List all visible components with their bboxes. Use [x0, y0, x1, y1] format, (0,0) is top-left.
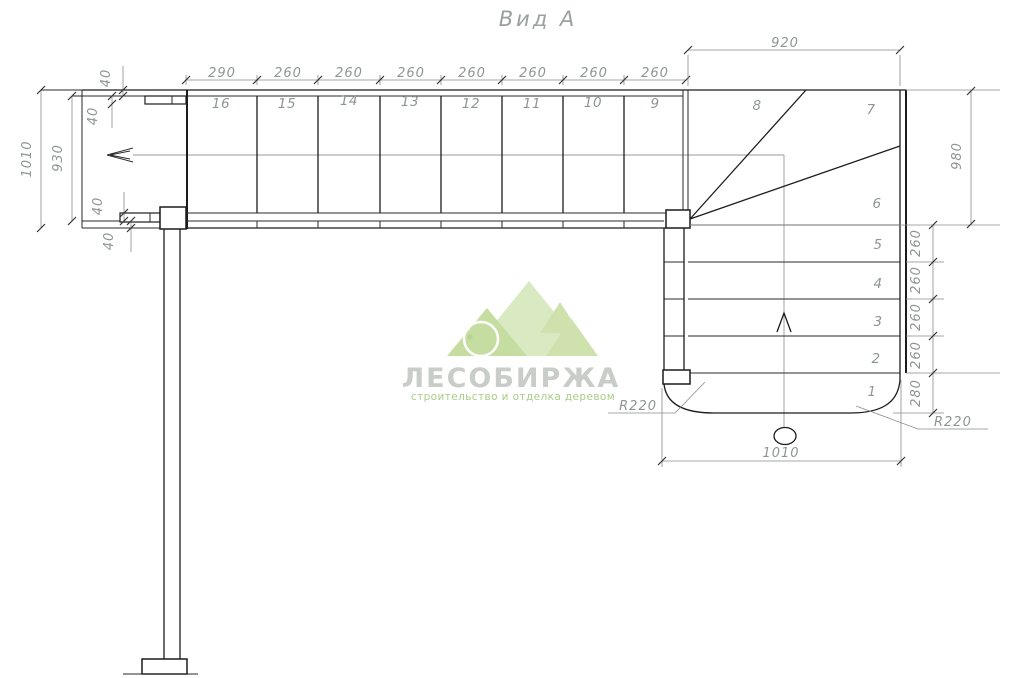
dim-top-260-2: 260	[335, 66, 363, 81]
newel-post-corner	[666, 210, 690, 228]
step-number-2: 2	[871, 351, 880, 367]
step-number-10: 10	[584, 95, 602, 111]
step-number-4: 4	[873, 276, 882, 292]
dim-top-260-1: 260	[274, 66, 302, 81]
dim-top-260-4: 260	[458, 66, 486, 81]
dim-right-280: 280	[909, 379, 924, 407]
dim-right-260-3: 260	[909, 303, 924, 331]
step-number-8: 8	[752, 98, 761, 114]
dim-offset-2: 40	[86, 107, 101, 126]
stringer-divider-ticks	[257, 221, 624, 228]
landing-geometry	[82, 90, 198, 674]
step-number-7: 7	[866, 102, 875, 118]
dim-line-920	[688, 50, 900, 86]
step-number-13: 13	[401, 94, 419, 110]
step-number-1: 1	[867, 384, 876, 400]
dim-landing-clear: 930	[51, 144, 66, 172]
dim-right-260-1: 260	[909, 229, 924, 257]
newel-post-landing	[160, 207, 186, 229]
walk-start-arrow-icon	[107, 148, 133, 162]
dim-right-260-2: 260	[909, 266, 924, 294]
winder-left-edges	[683, 90, 688, 213]
step-number-16: 16	[212, 96, 230, 112]
handrail-top	[145, 96, 186, 104]
dim-winder-width: 920	[771, 36, 799, 51]
step-number-3: 3	[873, 314, 882, 330]
dim-top-260-7: 260	[641, 66, 669, 81]
step-number-9: 9	[650, 96, 659, 112]
step-number-6: 6	[872, 196, 881, 212]
support-column	[164, 229, 180, 659]
newel-post-bottom	[663, 370, 690, 384]
dim-top-260-5: 260	[519, 66, 547, 81]
lower-step-lines	[688, 262, 900, 373]
dim-winder-height: 980	[950, 142, 965, 170]
watermark-name: ЛЕСОБИРЖА	[402, 363, 621, 394]
watermark-logo: ЛЕСОБИРЖА строительство и отделка дерево…	[402, 281, 621, 403]
dim-top-260-3: 260	[397, 66, 425, 81]
dim-offset-1: 40	[99, 69, 114, 88]
landing-extension-lines	[41, 90, 82, 96]
dim-radius-left: R220	[619, 399, 657, 414]
dim-right-260-4: 260	[909, 341, 924, 369]
dim-offset-3: 40	[91, 197, 106, 216]
view-title: Вид А	[499, 7, 578, 31]
step-dividers	[257, 96, 624, 213]
dim-offset-4: 40	[102, 232, 117, 251]
dim-top-290: 290	[208, 66, 236, 81]
stringer-step-ticks	[664, 262, 684, 336]
step-number-14: 14	[340, 93, 358, 109]
dim-landing-overall: 1010	[20, 140, 35, 177]
dim-top-260-6: 260	[580, 66, 608, 81]
step-number-15: 15	[278, 96, 296, 112]
step-number-5: 5	[873, 237, 882, 253]
dim-lower-width: 1010	[762, 446, 799, 461]
step-number-12: 12	[462, 96, 480, 112]
watermark-tagline: строительство и отделка деревом	[411, 391, 615, 403]
walk-origin-circle	[774, 428, 796, 445]
drawing-canvas: ЛЕСОБИРЖА строительство и отделка дерево…	[0, 0, 1024, 678]
dim-radius-right: R220	[934, 415, 972, 430]
column-base-plate	[142, 659, 187, 674]
dim-ext-right	[690, 90, 1000, 413]
first-step-rounded-edge	[664, 380, 900, 413]
logo-hedgehog-eye	[468, 335, 473, 340]
handrail-bottom	[120, 213, 160, 222]
step-number-11: 11	[523, 96, 541, 112]
stair-plan-drawing: ЛЕСОБИРЖА строительство и отделка дерево…	[0, 0, 1024, 678]
